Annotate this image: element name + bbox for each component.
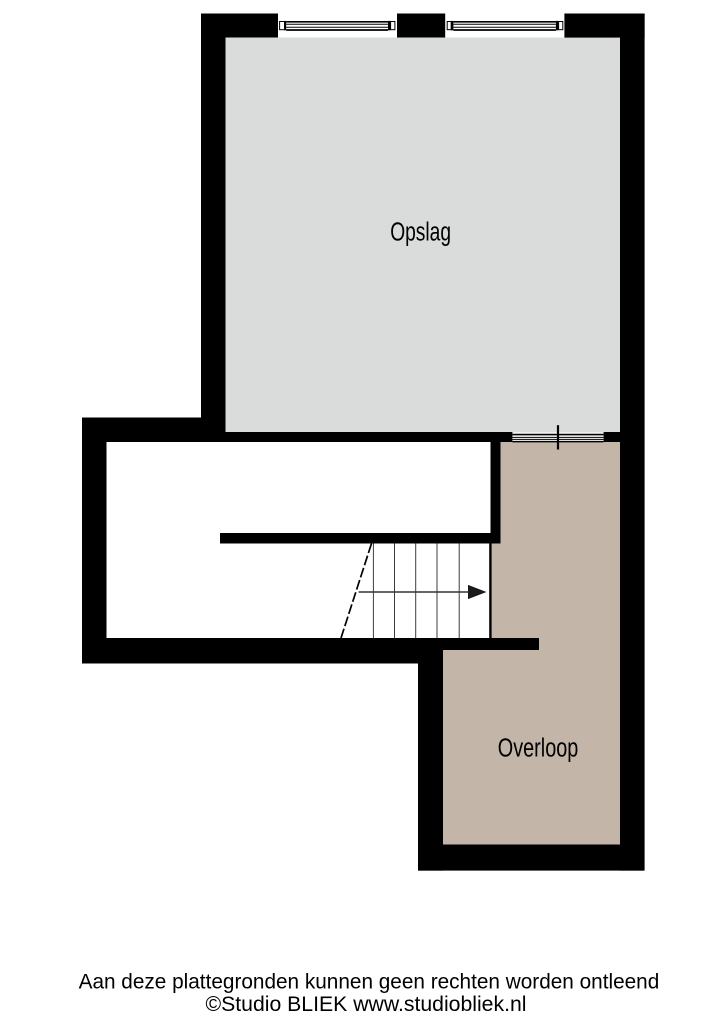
svg-text:Aan deze plattegronden kunnen: Aan deze plattegronden kunnen geen recht… <box>79 971 660 994</box>
svg-text:Overloop: Overloop <box>498 735 579 763</box>
svg-text:Opslag: Opslag <box>390 219 451 247</box>
svg-text:©Studio BLIEK www.studiobliek.: ©Studio BLIEK www.studiobliek.nl <box>206 993 527 1016</box>
